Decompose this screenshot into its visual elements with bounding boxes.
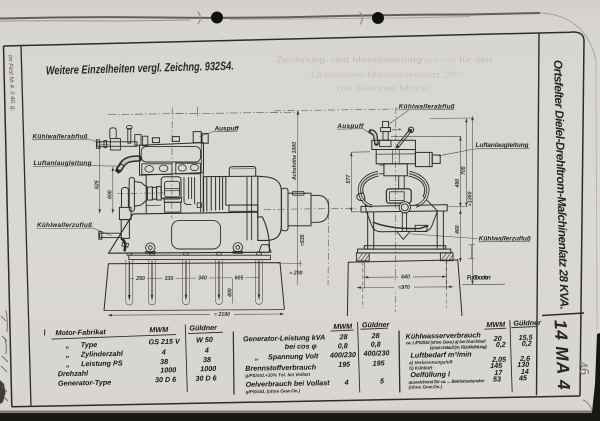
svg-text:≈1360: ≈1360 [467,191,473,206]
svg-text:0,8: 0,8 [371,340,381,349]
svg-text:„Drehstrom-Maschinensatz 28“: „Drehstrom-Maschinensatz 28“ [308,70,460,80]
svg-text:340: 340 [198,276,207,282]
svg-text:400/230: 400/230 [362,348,389,358]
svg-text:605: 605 [235,275,244,281]
svg-text:Güldner: Güldner [189,323,218,333]
svg-text:0,8: 0,8 [338,341,348,350]
svg-text:38: 38 [203,355,211,364]
svg-text:30 D 6: 30 D 6 [155,375,177,384]
svg-text:4: 4 [161,347,166,356]
svg-text:≈ 2190: ≈ 2190 [214,312,230,318]
svg-text:46: 46 [575,360,592,377]
svg-text:Fußboden: Fußboden [467,274,491,281]
svg-text:45: 45 [518,373,528,382]
svg-text:Oelfüllung l: Oelfüllung l [410,369,451,379]
svg-text:53: 53 [493,374,501,383]
svg-text:Achshöhe 1000: Achshöhe 1000 [292,142,298,181]
svg-text:0,2: 0,2 [496,340,506,349]
svg-text:Luftbedarf m³/min: Luftbedarf m³/min [410,349,472,359]
svg-text:1000: 1000 [200,364,216,373]
svg-text:Drehzahl: Drehzahl [58,369,90,379]
svg-text:4: 4 [204,346,209,355]
svg-text:0,2: 0,2 [522,339,532,348]
svg-text:577: 577 [346,174,352,184]
svg-text:MWM: MWM [333,322,353,331]
svg-text:400: 400 [227,288,233,298]
svg-text:28: 28 [338,332,347,341]
svg-text:250: 250 [135,276,145,282]
svg-text:W 50: W 50 [196,335,213,344]
svg-text:705: 705 [461,166,467,175]
svg-text:460: 460 [455,225,461,235]
svg-text:330: 330 [165,276,174,282]
svg-text:Motor-Fabrikat: Motor-Fabrikat [55,327,106,337]
svg-text:14 MA 4: 14 MA 4 [551,319,575,390]
svg-text:Zeichnung- und Massänderung gi: Zeichnung- und Massänderung gilt nur für… [276,55,492,65]
svg-text:Generator-Type: Generator-Type [58,378,111,388]
svg-text:600: 600 [107,190,113,199]
svg-text:≈535: ≈535 [300,234,306,246]
svg-text:640: 640 [401,274,410,280]
svg-text:GS 215 V: GS 215 V [149,337,182,347]
svg-text:MWM: MWM [149,325,169,334]
svg-text:mit Güldner Motor.: mit Güldner Motor. [337,83,431,93]
svg-text:≈ 200: ≈ 200 [290,271,303,277]
svg-text:490: 490 [455,179,461,189]
svg-text:30 D 6: 30 D 6 [195,373,217,382]
svg-text:195: 195 [338,360,351,369]
svg-text:Güldner: Güldner [513,318,542,328]
svg-text:bei cos φ: bei cos φ [285,341,317,351]
svg-text:1000: 1000 [160,365,176,374]
svg-text:(ohne Gew.Oe.): (ohne Gew.Oe.) [409,384,443,390]
svg-text:195: 195 [373,358,386,367]
svg-text:625: 625 [94,180,100,189]
svg-text:4: 4 [343,378,348,387]
svg-text:≈970: ≈970 [398,285,410,291]
svg-text:MWM: MWM [486,320,506,329]
svg-text:400/230: 400/230 [329,350,356,360]
svg-text:Oelverbrauch bei Vollast: Oelverbrauch bei Vollast [245,378,330,389]
